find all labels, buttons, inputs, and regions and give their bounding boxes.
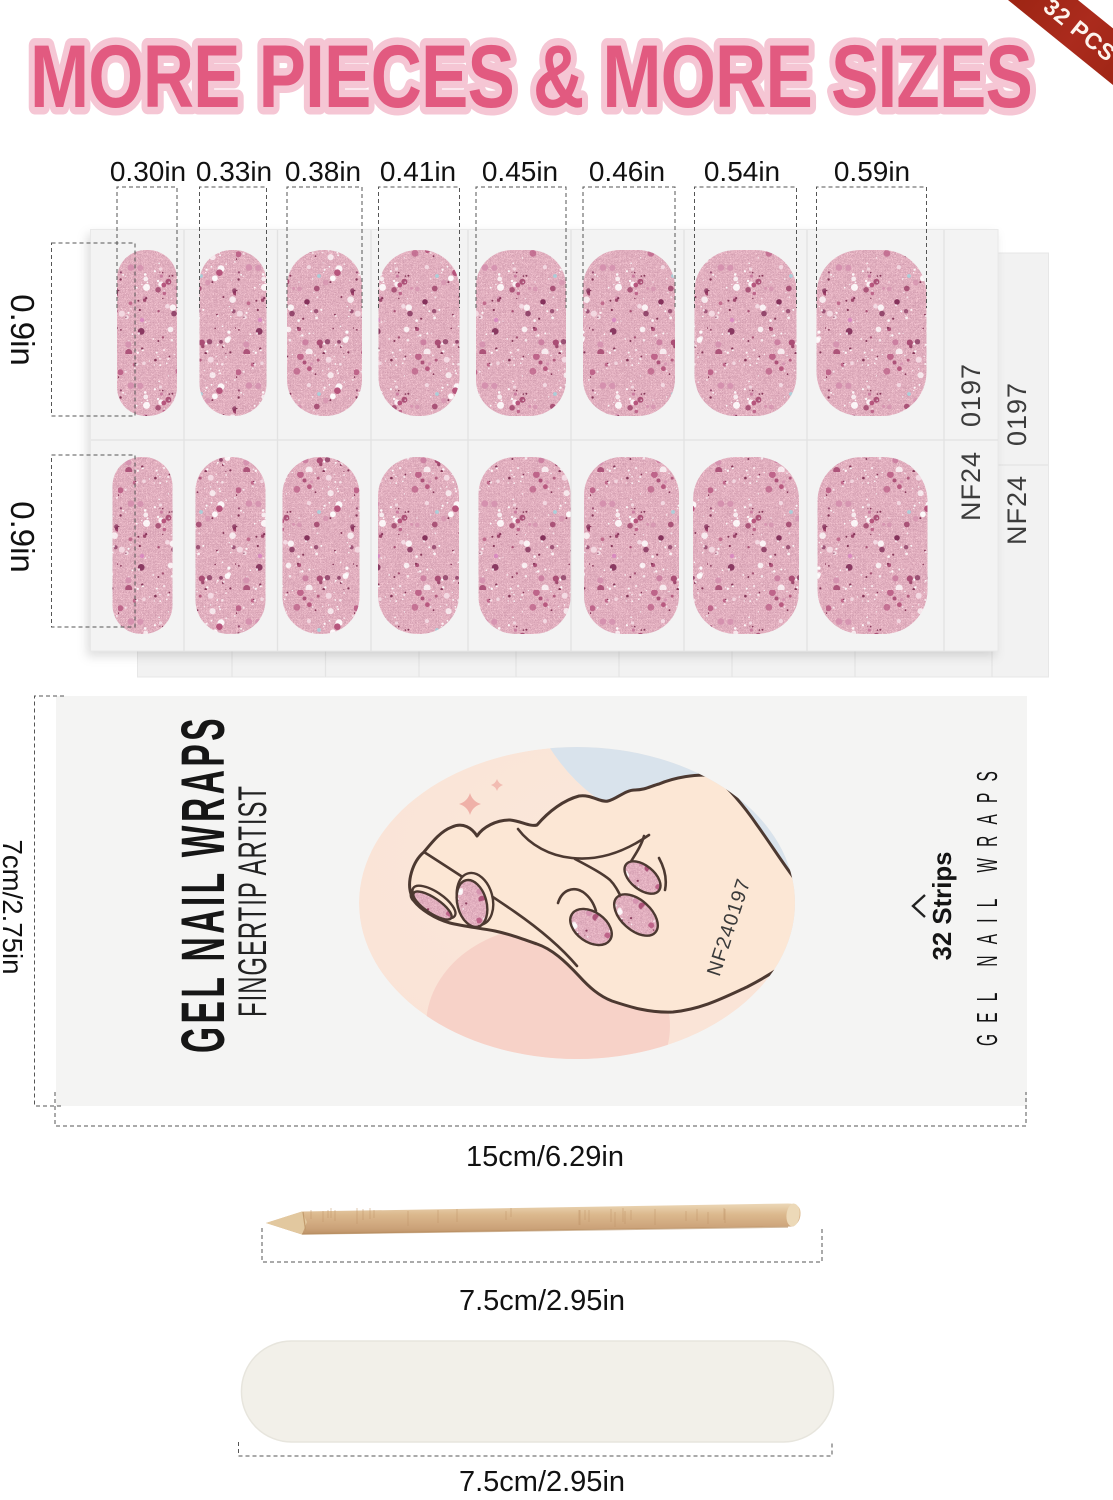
svg-text:7.5cm/2.95in: 7.5cm/2.95in xyxy=(459,1285,625,1317)
svg-text:0.33in: 0.33in xyxy=(196,156,272,187)
svg-text:0.9in: 0.9in xyxy=(4,294,41,366)
svg-text:0.9in: 0.9in xyxy=(4,501,41,573)
svg-text:32 Strips: 32 Strips xyxy=(927,852,957,961)
svg-text:0.30in: 0.30in xyxy=(110,156,186,187)
svg-text:0.45in: 0.45in xyxy=(482,156,558,187)
svg-text:FINGERTIP ARTIST: FINGERTIP ARTIST xyxy=(230,785,275,1017)
svg-text:NF24: NF24 xyxy=(956,451,986,521)
svg-text:0.46in: 0.46in xyxy=(589,156,665,187)
svg-text:7cm/2.75in: 7cm/2.75in xyxy=(0,840,28,975)
svg-text:15cm/6.29in: 15cm/6.29in xyxy=(466,1141,624,1173)
svg-text:GEL NAIL WRAPS: GEL NAIL WRAPS xyxy=(971,760,1003,1046)
svg-text:0.59in: 0.59in xyxy=(834,156,910,187)
svg-text:MORE PIECES & MORE SIZES: MORE PIECES & MORE SIZES xyxy=(30,26,1032,126)
svg-text:0.54in: 0.54in xyxy=(704,156,780,187)
svg-text:GEL NAIL WRAPS: GEL NAIL WRAPS xyxy=(170,715,238,1053)
svg-text:7.5cm/2.95in: 7.5cm/2.95in xyxy=(459,1466,625,1498)
svg-text:0.38in: 0.38in xyxy=(285,156,361,187)
svg-text:0197: 0197 xyxy=(1002,382,1032,446)
svg-text:NF24: NF24 xyxy=(1002,475,1032,545)
svg-text:0.41in: 0.41in xyxy=(380,156,456,187)
svg-text:0197: 0197 xyxy=(956,363,986,427)
